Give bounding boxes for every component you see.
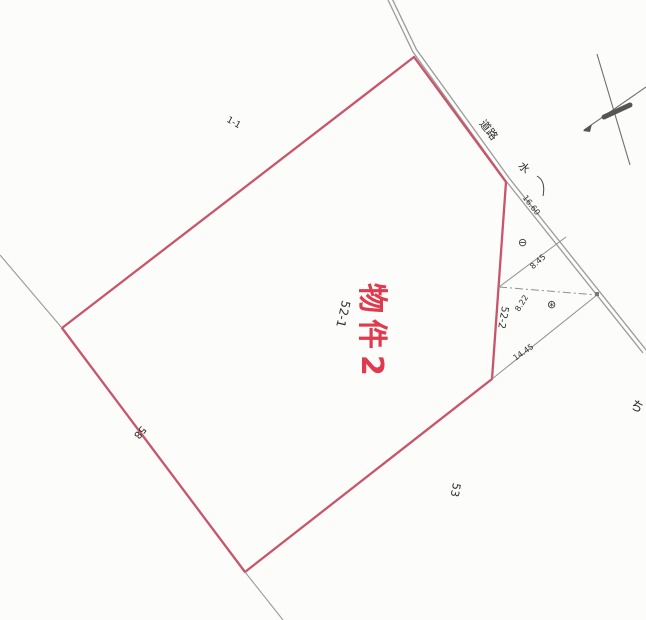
circle-asterisk-symbol: ⊛ xyxy=(547,299,556,310)
property-overlay-label: 物件2 xyxy=(356,283,386,382)
parcel-outline-main xyxy=(62,57,506,572)
cadastral-map: 物件2 52-1 52-2 1-1 53 58 ち 道路 水 16.60 8.4… xyxy=(0,0,646,620)
circle-minus-symbol: ⊖ xyxy=(518,237,527,248)
junction-mark xyxy=(595,292,599,296)
survey-cross-line-2 xyxy=(584,87,646,130)
road-line-left xyxy=(388,0,643,353)
survey-arrowhead xyxy=(583,124,592,132)
boundary-extension-bottom xyxy=(245,572,283,620)
water-label-brace xyxy=(537,176,544,196)
boundary-extension-left xyxy=(0,255,62,328)
sliver-line-dashed xyxy=(499,287,597,295)
neighbor-lot-bottom-right: 53 xyxy=(449,482,462,498)
